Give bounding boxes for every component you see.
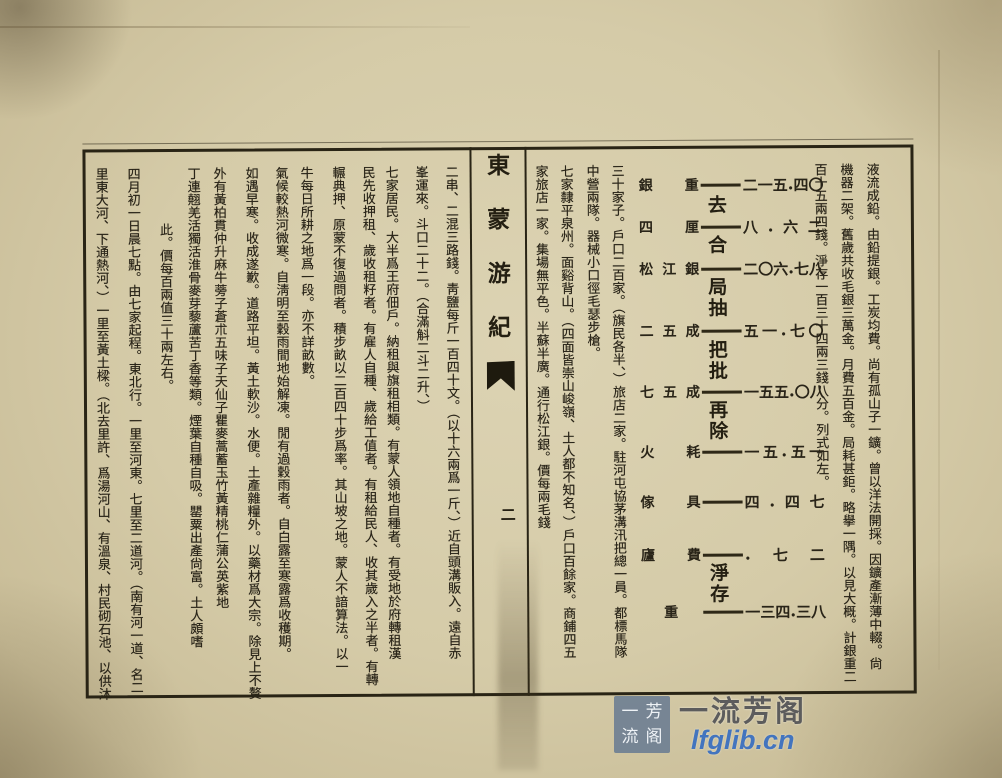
ledger-line [701,267,741,270]
ledger-line [701,225,741,228]
ledger-line [702,450,742,453]
ledger-row: 廬費•七二 [641,544,829,565]
ledger-row: 松江銀二〇六•七八 [639,258,827,279]
ledger-label: 銀重 [639,175,699,195]
text-column: 三十家子。戶口二百家。（旗民各半、）旅店二家。駐河屯協茅溝汛把總一員。都標馬隊 [606,164,629,658]
ledger-label: 七五成 [640,382,700,402]
text-column: 民先收押租、歲收租籽者。有雇人自種、歲給工值者。有租給民人、收其歲入之半者。有轉 [357,166,380,686]
ledger-line [703,610,743,613]
text-column: 輾典押、原蒙不復過問者。積步畝以二百四十步爲率。其山坡之地。蒙人不諳算法。以一 [327,166,350,673]
text-column: 家旅店一家。集場無平色。半蘇半廣。通行松江銀。價每兩毛錢 [530,165,552,529]
ledger-row: 傢具四•四七 [641,491,829,512]
ledger-amount: 二一五•四〇 [743,174,823,195]
ledger-row: 七五成一五五•〇八 [640,381,828,402]
text-column: 二串、二混三路錢。靑鹽每斤一百四十文。（以十六兩爲一斤、）近自頭溝販入。遠自赤 [440,165,463,659]
text-column: 如遇早寒。收成遂歉。道路平坦。黃土軟沙。水便。土產雜糧外。以藥材爲大宗。除見上不… [240,166,263,699]
frame-outer-rule [82,138,913,144]
ledger-label: 火耗 [640,442,700,462]
ledger-label: 松江銀 [639,259,699,279]
watermark-logo: 一 芳 流 阁 [614,696,670,753]
ledger-operator: 把批 [707,340,731,382]
watermark-site-url: lfglib.cn [691,726,807,754]
ledger-line [703,500,743,503]
ledger-line [703,553,743,556]
ledger-label: 四厘 [639,217,699,237]
watermark-logo-char: 流 [622,728,639,746]
ledger-row: 火耗一五•五一 [640,441,828,462]
text-column: 四月初一日晨七點。由七家起程。東北行。一里至河東。七里至二道河。（南有河一道、名… [122,167,145,694]
text-column: 七家居民。大半爲王府佃戶。納租與旗租相類。有蒙人領地自種者。有受地於府轉租漢 [380,166,403,660]
text-column: 丁連翹羌活獨活淮骨麥芽藜蘆苦丁香等類。煙葉自種自吸。罌粟出產尙富。土人頗嗜 [182,167,205,648]
ledger-label: 重 [641,602,701,622]
book-scan: 東蒙游紀 二 液流成鉛。由鉛提銀。工炭均費。尚有孤山子一鑛。曾以洋法開採。因鑛產… [0,0,1002,778]
ledger-amount: 一五五•〇八 [744,381,824,402]
ledger-label: 二五成 [639,321,699,341]
ledger-operator: 合 [706,235,730,256]
watermark: 一 芳 流 阁 一流芳阁 lfglib.cn [614,696,807,755]
ledger-amount: 二〇六•七八 [743,258,823,279]
ledger-row: 銀重二一五•四〇 [639,174,827,195]
text-column: 峯運來。斗口二十二。（合滿斛二斗二升、） [410,165,432,412]
ledger-amount: 一三四•三八 [745,601,825,622]
watermark-logo-char: 一 [622,703,639,721]
ledger-operator: 局抽 [706,277,730,319]
text-column: 外有黃柏貫仲升麻牛蒡子蒼朮五味子天仙子瞿麥蒿蓄玉竹黃精桃仁蒲公英紫地 [208,167,231,609]
ledger-amount: •七二 [745,544,825,565]
page-number: 二 [501,504,516,525]
ledger-line [702,329,742,332]
ledger-amount: 八•六二 [743,216,823,237]
ledger-label: 廬費 [641,545,701,565]
ledger-amount: 四•四七 [745,491,825,512]
ledger-label: 傢具 [641,492,701,512]
text-column: 此。價每百兩值三十兩左右。 [154,223,175,392]
text-column: 牛每日所耕之地爲一段。亦不詳畝數。 [295,166,316,387]
watermark-logo-char: 芳 [646,703,663,721]
ledger-line [702,390,742,393]
spine-fold-shadow [498,540,538,770]
ledger-operator: 去 [706,195,730,216]
ledger-row: 重一三四•三八 [641,601,829,622]
text-column: 里東大河、下通熱河、）一里至黃土樑。（北去里許、爲湯河山、有溫泉、村民砌石池、以… [90,167,113,700]
ledger-amount: 一五•五一 [744,441,824,462]
spine-book-title: 東蒙游紀 [486,153,513,369]
ledger-operator: 再除 [707,400,731,442]
text-column: 七家隸平泉州。面谿背山。（四面皆崇山峻嶺、土人都不知名、）戶口百餘家。商鋪四五 [555,165,578,659]
ledger-amount: 五一•七〇 [743,320,823,341]
text-column: 機器二架。舊歲共收毛銀三萬金。月費五百金。局耗甚鉅。略擧一隅。以見大概。計銀重二 [835,163,858,683]
ledger-operator: 淨存 [708,563,732,605]
ledger-line [701,183,741,186]
ledger-row: 二五成五一•七〇 [639,320,827,341]
text-column: 液流成鉛。由鉛提銀。工炭均費。尚有孤山子一鑛。曾以洋法開採。因鑛產漸薄中輟。尙 [861,163,884,670]
watermark-text: 一流芳阁 lfglib.cn [679,696,807,755]
text-column: 氣候較熱河微寒。自淸明至穀雨間地始解凍。閒有過穀雨者。自白露至寒露爲收穫期。 [270,166,293,660]
text-column: 中營兩隊。器械小口徑毛瑟步槍。 [581,164,602,359]
watermark-site-name: 一流芳阁 [679,696,807,726]
watermark-logo-char: 阁 [646,728,663,746]
ledger-row: 四厘八•六二 [639,216,827,237]
